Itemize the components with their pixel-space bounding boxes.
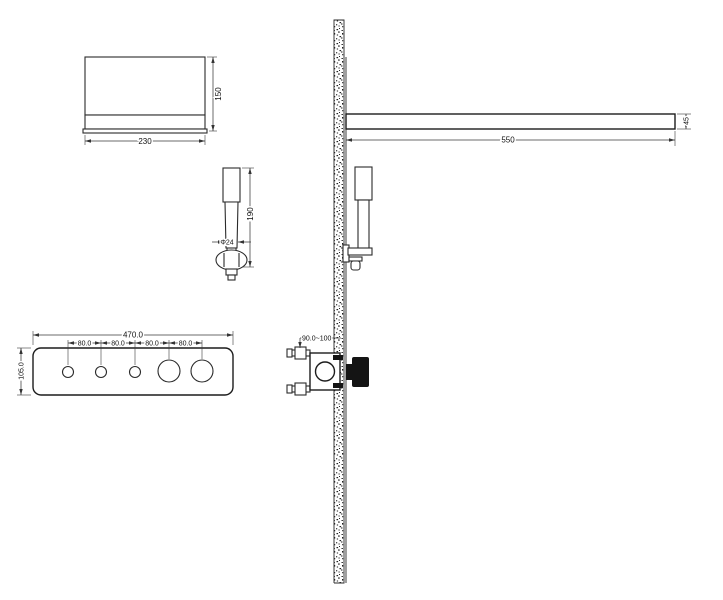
control-knob-small-1 <box>63 367 74 378</box>
dim-label-hand-shower-diameter: Φ24 <box>220 239 233 246</box>
dim-label-panel-height: 105.0 <box>18 362 25 380</box>
valve-mount-tab-bottom <box>333 383 343 388</box>
dim-label-arm-length: 550 <box>501 136 515 145</box>
shower-head-body <box>85 57 205 115</box>
dim-label-valve-depth: 90.0~100 <box>302 335 331 342</box>
hand-shower-connector-tip <box>228 275 235 280</box>
dim-label-spacing-3: 80.0 <box>145 340 159 347</box>
dim-label-spacing-2: 80.0 <box>111 340 125 347</box>
valve-inlet-nut-top <box>295 347 306 359</box>
bracket-holder-arm <box>348 248 372 255</box>
valve-inlet-tip-top <box>287 349 292 357</box>
view-control-panel-front: 470.0 80.0 80.0 80.0 80.0 105.0 <box>17 331 233 395</box>
shower-arm-bar <box>346 114 675 129</box>
view-valve-side: 90.0~100 <box>287 335 369 395</box>
dim-label-panel-width: 470.0 <box>123 331 144 340</box>
shower-head-band <box>85 115 205 129</box>
hand-shower-side-head <box>355 167 372 200</box>
valve-cartridge-circle <box>316 362 335 381</box>
technical-drawing-canvas: 150 230 190 Φ24 470.0 <box>0 0 723 600</box>
shower-head-faceplate <box>83 129 207 133</box>
dim-label-head-height: 150 <box>214 87 223 101</box>
hand-shower-connector <box>226 269 237 275</box>
valve-mount-tab-top <box>333 355 343 360</box>
hose-connector-nub <box>351 261 360 270</box>
dim-label-arm-thickness: 45 <box>683 117 690 125</box>
valve-inlet-tip-bottom <box>287 385 292 393</box>
technical-drawing-page: 150 230 190 Φ24 470.0 <box>0 0 723 600</box>
view-shower-arm-side: 550 45 <box>346 114 691 146</box>
hand-shower-head <box>223 168 240 202</box>
hand-shower-ball-fitting <box>216 250 247 270</box>
view-hand-shower-front: 190 Φ24 <box>212 168 255 280</box>
wall-section <box>334 20 346 583</box>
view-shower-head-front: 150 230 <box>83 57 223 146</box>
control-knob-large-2 <box>191 360 213 382</box>
hose-connector-flange <box>349 257 362 261</box>
control-knob-large-1 <box>158 360 180 382</box>
control-knob-small-2 <box>96 367 107 378</box>
dim-label-spacing-4: 80.0 <box>179 340 193 347</box>
view-hand-shower-side <box>343 167 372 270</box>
valve-knob <box>352 357 369 387</box>
control-knob-small-3 <box>130 367 141 378</box>
dim-label-spacing-1: 80.0 <box>78 340 92 347</box>
dim-label-head-width: 230 <box>138 137 152 146</box>
hand-shower-side-handle <box>358 200 369 252</box>
wall-hatch <box>334 20 344 583</box>
valve-knob-stem <box>346 364 353 380</box>
dim-label-hand-shower-length: 190 <box>246 207 255 221</box>
valve-inlet-nut-bottom <box>295 383 306 395</box>
